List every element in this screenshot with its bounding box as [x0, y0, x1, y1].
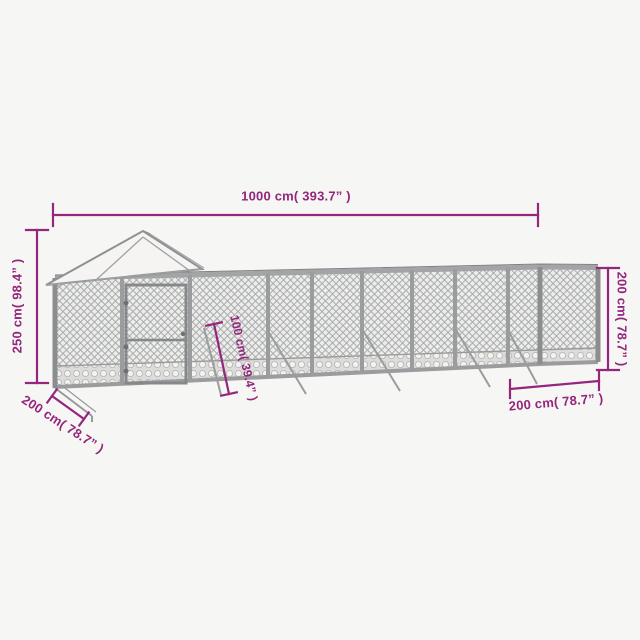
dim-length-line: [53, 204, 538, 226]
dim-length-label: 1000 cm( 393.7” ): [241, 189, 351, 204]
kennel-illustration: [0, 0, 640, 640]
dim-height-left-line: [26, 230, 48, 383]
door-hinge: [124, 301, 129, 306]
dim-height-left-label: 250 cm( 98.4” ): [10, 259, 25, 354]
door-handle: [181, 332, 185, 336]
door-hinge: [124, 345, 129, 350]
door-hinge: [124, 369, 129, 374]
kennel-body: [46, 231, 598, 422]
dim-height-right-label: 200 cm( 78.7” ): [615, 272, 630, 367]
product-diagram: 1000 cm( 393.7” ) 250 cm( 98.4” ) 200 cm…: [0, 0, 640, 640]
